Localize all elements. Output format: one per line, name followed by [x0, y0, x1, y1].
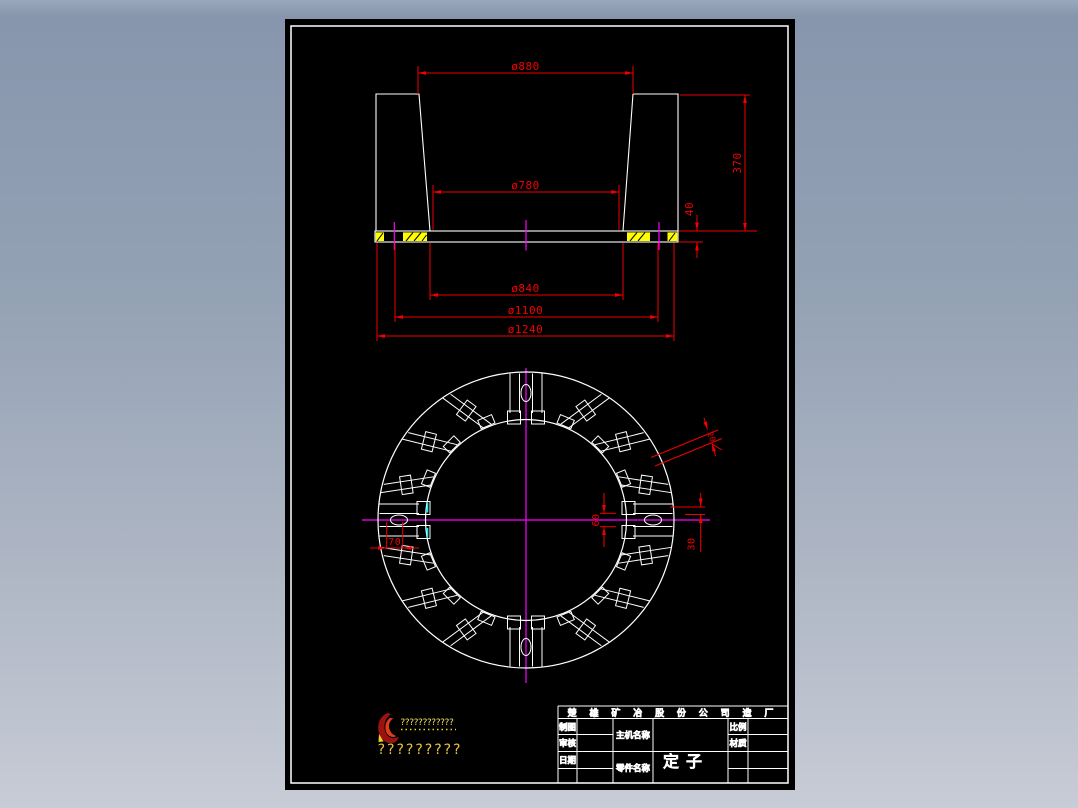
label-machine-name: 主机名称 — [616, 730, 651, 741]
svg-text:40: 40 — [683, 202, 696, 216]
svg-text:ø1100: ø1100 — [508, 304, 544, 317]
label-date: 日期 — [559, 756, 576, 766]
title-block: 楚 雄 矿 冶 股 份 公 司 造 厂 制图 审核 日期 主机名称 零件名称 比… — [558, 706, 788, 783]
dim-step-diameter: ø840 — [430, 243, 623, 300]
dim-duct-width: 20 — [651, 418, 722, 466]
drawing-svg: ø880 ø780 ø840 ø1100 ø1240 — [285, 19, 795, 790]
svg-text:ø840: ø840 — [511, 282, 540, 295]
cad-drawing-canvas: ø880 ø780 ø840 ø1100 ø1240 — [285, 19, 795, 790]
section-right-block — [623, 94, 678, 231]
svg-text:70: 70 — [388, 537, 401, 548]
label-material: 材质 — [729, 738, 747, 749]
page-background: { "colors": { "background_top": "#8796ad… — [0, 0, 1078, 808]
section-left-block — [376, 94, 430, 231]
svg-text:60: 60 — [591, 513, 602, 526]
flame-logo-icon — [378, 713, 398, 743]
svg-text:ø1240: ø1240 — [508, 323, 544, 336]
dim-top-diameter: ø880 — [418, 60, 633, 94]
logo-text-line2: ????????? — [377, 742, 462, 758]
part-name-value: 定子 — [663, 752, 709, 771]
drawing-frame — [291, 26, 788, 783]
logo-text-line1: ???????????? — [400, 718, 454, 728]
svg-text:ø880: ø880 — [511, 60, 540, 73]
dim-flange-thickness: 40 — [679, 202, 703, 258]
svg-text:ø780: ø780 — [511, 179, 540, 192]
label-drafter: 制图 — [559, 722, 576, 733]
svg-text:20: 20 — [705, 430, 717, 443]
label-checker: 审核 — [559, 738, 577, 749]
logo: ???????????? ????????? — [377, 713, 462, 758]
dim-slot-half-width: 30 — [670, 493, 705, 552]
label-part-name: 零件名称 — [616, 763, 651, 774]
svg-text:370: 370 — [731, 152, 744, 173]
company-name: 楚 雄 矿 冶 股 份 公 司 造 厂 — [568, 707, 779, 719]
label-scale: 比例 — [729, 722, 746, 733]
svg-text:30: 30 — [687, 537, 698, 550]
plan-view: 70 60 30 20 — [362, 368, 722, 683]
section-view: ø880 ø780 ø840 ø1100 ø1240 — [375, 60, 757, 341]
